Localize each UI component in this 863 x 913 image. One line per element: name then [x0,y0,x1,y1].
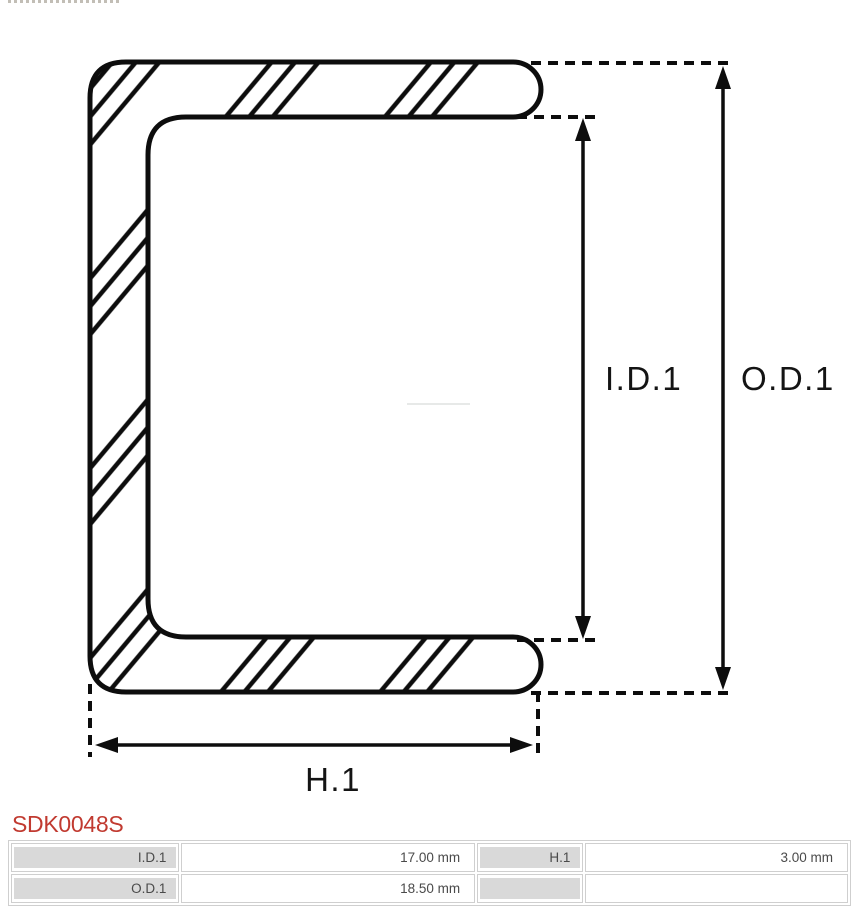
spec-label-cell: H.1 [477,843,583,872]
hatch-fill [60,30,580,730]
part-number: SDK0048S [12,811,123,838]
dimension-od1: O.D.1 [531,63,835,693]
watermark-line [407,403,470,405]
cross-section [60,30,580,730]
table-row: I.D.1 17.00 mm H.1 3.00 mm [11,843,848,872]
spec-table: I.D.1 17.00 mm H.1 3.00 mm O.D.1 18.50 m… [8,840,851,906]
spec-value-id1: 17.00 mm [184,847,472,868]
spec-label-cell: I.D.1 [11,843,179,872]
dimension-diagram: I.D.1 O.D.1 H.1 [0,0,863,810]
spec-value-od1: 18.50 mm [184,878,472,899]
spec-label-id1: I.D.1 [14,847,176,868]
spec-label-od1: O.D.1 [14,878,176,899]
od1-arrow-up-icon [715,66,731,89]
spec-value-h1: 3.00 mm [588,847,845,868]
od1-arrow-down-icon [715,667,731,690]
h1-arrow-right-icon [510,737,533,753]
id1-arrow-down-icon [575,616,591,639]
spec-value-empty [588,878,845,899]
spec-value-cell: 18.50 mm [181,874,475,903]
spec-label-cell: O.D.1 [11,874,179,903]
spec-value-cell: 3.00 mm [585,843,848,872]
spec-label-cell [477,874,583,903]
spec-value-cell [585,874,848,903]
h1-arrow-left-icon [95,737,118,753]
dimension-label-id1: I.D.1 [605,360,682,397]
spec-label-h1: H.1 [480,847,580,868]
table-row: O.D.1 18.50 mm [11,874,848,903]
spec-label-empty [480,878,580,899]
id1-arrow-up-icon [575,118,591,141]
spec-value-cell: 17.00 mm [181,843,475,872]
dimension-label-h1: H.1 [305,761,361,798]
dimension-id1: I.D.1 [517,117,682,640]
cross-section-outline [90,62,541,692]
dimension-h1: H.1 [90,684,538,798]
dimension-label-od1: O.D.1 [741,360,835,397]
